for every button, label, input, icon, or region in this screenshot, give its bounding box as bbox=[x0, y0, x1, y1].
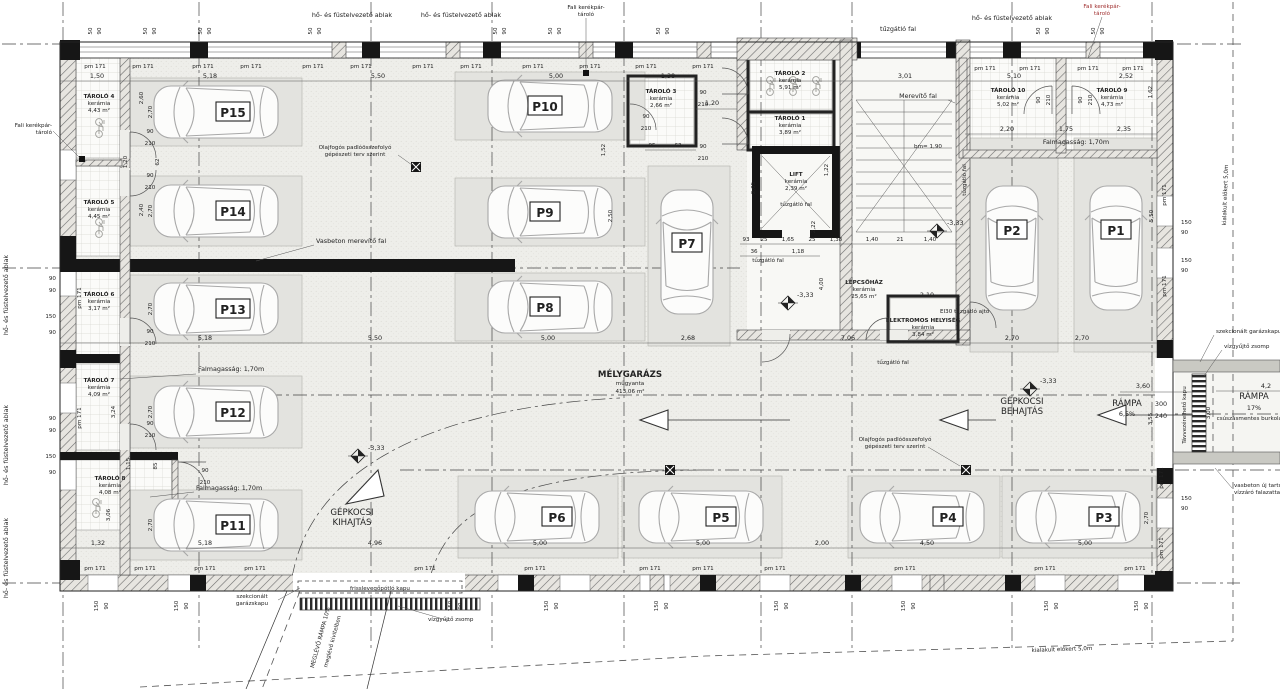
oil-drain-label: Olajfogós padlóösszefolyó bbox=[859, 436, 932, 443]
room-area: 5,02 m² bbox=[997, 101, 1019, 108]
pm-label: pm 171 bbox=[1159, 537, 1165, 559]
fire-wall-label: tűzgátló fal bbox=[961, 164, 968, 196]
fire-door-label: EI30 tűzgátló ajtó bbox=[940, 308, 990, 315]
dim-label: 7,06 bbox=[841, 334, 855, 342]
room-name: TÁROLÓ 7 bbox=[84, 377, 115, 384]
dim-label: 2,70 bbox=[1144, 511, 1150, 524]
window-size-label: 90 bbox=[1100, 27, 1106, 35]
room-name: TÁROLÓ 4 bbox=[84, 93, 115, 100]
pm-label: pm 171 bbox=[692, 566, 714, 572]
dim-label: 36 bbox=[750, 249, 758, 255]
dim-label: 2,60 bbox=[139, 91, 145, 104]
window-size-label: 90 bbox=[49, 276, 57, 282]
door-size-label: 210 bbox=[698, 156, 709, 162]
room-name: TÁROLÓ 2 bbox=[775, 70, 806, 77]
car-entry-label: BEHAJTÁS bbox=[1001, 405, 1043, 417]
door-size-label: 210 bbox=[1046, 94, 1052, 105]
smoke-vent-label: hő- és füstelvezető ablak bbox=[312, 10, 393, 19]
smoke-vent-label: hő- és füstelvezető ablak bbox=[972, 13, 1053, 22]
window-size-label: 90 bbox=[557, 27, 563, 35]
window-size-label: 90 bbox=[104, 602, 110, 610]
wall-height-label: Falmagasság: 1,70m bbox=[196, 484, 262, 492]
rc-wall-label: Vasbeton merevítő fal bbox=[316, 236, 386, 245]
window-size-label: 90 bbox=[1181, 268, 1189, 274]
window-size-label: 150 bbox=[654, 600, 660, 611]
room-material: kerámia bbox=[88, 298, 111, 305]
dim-label: 93 bbox=[742, 237, 750, 243]
room-name: TÁROLÓ 6 bbox=[84, 291, 115, 298]
dim-label: 62 bbox=[155, 158, 161, 165]
room-name: LIFT bbox=[789, 172, 802, 178]
parking-label: P10 bbox=[532, 100, 558, 114]
bike-rack-label: tároló bbox=[36, 129, 53, 136]
sectional-gate-label: szekcionált garázskapu bbox=[1216, 328, 1280, 335]
dim-label: 1,38 bbox=[830, 237, 843, 243]
door-size-label: 90 bbox=[1036, 96, 1042, 104]
door-size-label: 210 bbox=[1088, 94, 1094, 105]
pm-label: pm 171 bbox=[194, 566, 216, 572]
dim-label: 2,70 bbox=[148, 302, 154, 315]
window-size-label: 150 bbox=[1134, 600, 1140, 611]
dim-label: 1,15 bbox=[126, 457, 132, 470]
window-size-label: 50 bbox=[656, 27, 662, 35]
floor-drain-icon bbox=[665, 465, 675, 475]
door-size-label: 90 bbox=[1078, 96, 1084, 104]
dim-label: 4,50 bbox=[920, 539, 934, 547]
dim-label: 2,68 bbox=[681, 334, 695, 342]
oil-drain-label: gépészeti terv szerint bbox=[865, 443, 927, 450]
room-material: kerámia bbox=[88, 206, 111, 213]
dim-label: 1,20 bbox=[123, 155, 129, 168]
pm-label: pm 171 bbox=[244, 566, 266, 572]
window-size-label: 150 bbox=[544, 600, 550, 611]
level-label: -3,33 bbox=[368, 444, 385, 452]
window-size-label: 150 bbox=[45, 314, 56, 320]
dim-label: 2,40 bbox=[139, 203, 145, 216]
pm-label: pm 171 bbox=[1077, 66, 1099, 72]
door-size-label: 210 bbox=[145, 341, 156, 347]
dim-label: 1,62 bbox=[1148, 86, 1154, 98]
room-area: 4,09 m² bbox=[88, 391, 110, 398]
door-size-label: 90 bbox=[146, 129, 154, 135]
rc-wall-label: vasbeton új tartófal bbox=[1234, 482, 1280, 489]
window-size-label: 90 bbox=[184, 602, 190, 610]
room-area: 3,17 m² bbox=[88, 305, 110, 312]
door-size-label: 90 bbox=[699, 144, 707, 150]
window-size-label: 50 bbox=[88, 27, 94, 35]
dim-label: 5,18 bbox=[203, 72, 217, 80]
room-name: ELEKTROMOS HELYISÉG bbox=[886, 316, 961, 324]
sectional-gate-label: szekcionált bbox=[236, 593, 268, 600]
window-size-label: 150 bbox=[94, 600, 100, 611]
parking-label: P7 bbox=[678, 237, 695, 251]
room-area: 5,91 m² bbox=[779, 84, 801, 91]
window-size-label: 150 bbox=[774, 600, 780, 611]
dim-label: 2,05 bbox=[751, 181, 757, 194]
pm-label: pm 171 bbox=[524, 566, 546, 572]
dim-label: 1,52 bbox=[601, 144, 607, 156]
door-size-label: 90 bbox=[146, 421, 154, 427]
window-size-label: 90 bbox=[97, 27, 103, 35]
window-size-label: 150 bbox=[448, 600, 454, 611]
pm-label: pm 171 bbox=[302, 64, 324, 70]
window-size-label: 90 bbox=[317, 27, 323, 35]
dim-label: 4,96 bbox=[368, 539, 382, 547]
dim-label: 3,24 bbox=[111, 405, 117, 418]
dim-label: 2,50 bbox=[608, 209, 614, 222]
dim-label: 4,2 bbox=[1261, 382, 1271, 390]
oil-drain-label: gépészeti terv szerint bbox=[325, 151, 387, 158]
pm-label: pm 171 bbox=[692, 64, 714, 70]
room-material: kerámia bbox=[912, 324, 935, 331]
pm-label: pm 171 bbox=[240, 64, 262, 70]
floor-drain-icon bbox=[411, 162, 421, 172]
dim-label: 5,50 bbox=[371, 72, 385, 80]
window-size-label: 50 bbox=[198, 27, 204, 35]
window-size-label: 50 bbox=[1091, 27, 1097, 35]
parking-label: P13 bbox=[220, 303, 246, 317]
dim-label: 85 bbox=[153, 462, 159, 470]
smoke-vent-label: hő- és füstelvezető ablak bbox=[1, 518, 10, 599]
parking-label: P2 bbox=[1003, 224, 1020, 238]
room-material: kerámia bbox=[997, 94, 1020, 101]
room-material: kerámia bbox=[99, 482, 122, 489]
pm-label: pm 171 bbox=[764, 566, 786, 572]
dim-label: 5,00 bbox=[533, 539, 547, 547]
bike-rack-label: Fali kerékpár- bbox=[15, 122, 52, 129]
door-size-label: 90 bbox=[201, 468, 209, 474]
window-size-label: 90 bbox=[49, 288, 57, 294]
window-size-label: 90 bbox=[1181, 230, 1189, 236]
window-size-label: 150 bbox=[1181, 258, 1192, 264]
pm-label: pm 171 bbox=[84, 64, 106, 70]
room-name: TÁROLÓ 5 bbox=[84, 199, 115, 206]
room-material: kerámia bbox=[88, 384, 111, 391]
floor-plan-drawing: hő- és füstelvezető ablak hő- és füstelv… bbox=[0, 0, 1280, 689]
window-size-label: 50 bbox=[548, 27, 554, 35]
dim-label: 3,01 bbox=[898, 72, 912, 80]
window-size-label: 90 bbox=[49, 416, 57, 422]
parking-label: P15 bbox=[220, 106, 246, 120]
fire-wall-label: tűzgátló fal bbox=[877, 359, 909, 366]
car-exit-label: KIHAJTÁS bbox=[333, 516, 372, 528]
parking-label: P14 bbox=[220, 205, 246, 219]
window-size-label: 90 bbox=[665, 27, 671, 35]
bike-rack-label: Fali kerékpár- bbox=[567, 4, 604, 11]
level-label: -3,33 bbox=[797, 291, 814, 299]
dim-label: 2,00 bbox=[815, 539, 829, 547]
ramp-label: RÁMPA bbox=[1239, 390, 1269, 402]
dim-label: 2,70 bbox=[148, 518, 154, 531]
room-name: LÉPCSŐHÁZ bbox=[845, 278, 883, 286]
floor-plan-page: hő- és füstelvezető ablak hő- és füstelv… bbox=[0, 0, 1280, 689]
dim-label: 1,40 bbox=[866, 237, 879, 243]
stiffening-wall-label: Merevítő fal bbox=[899, 91, 937, 100]
window-size-label: 90 bbox=[784, 602, 790, 610]
window-size-label: 90 bbox=[152, 27, 158, 35]
dim-label: 21 bbox=[896, 237, 904, 243]
level-label: -3,33 bbox=[1040, 377, 1057, 385]
level-label: -3,33 bbox=[947, 219, 964, 227]
room-name: TÁROLÓ 10 bbox=[991, 87, 1026, 94]
front-yard-label: kialakult előkert 5,0m bbox=[1031, 646, 1092, 654]
window-size-label: 90 bbox=[49, 428, 57, 434]
dim-label: 1,50 bbox=[90, 72, 104, 80]
pm-label: pm 171 bbox=[77, 407, 83, 429]
pm-label: pm 171 bbox=[1034, 566, 1056, 572]
room-area: 3,89 m² bbox=[779, 129, 801, 136]
room-area: 4,08 m² bbox=[99, 489, 121, 496]
parking-label: P11 bbox=[220, 519, 246, 533]
pm-label: pm 171 bbox=[639, 566, 661, 572]
pm-label: pm 171 bbox=[77, 287, 83, 309]
remote-gate-label: Távvezérelhető kapu bbox=[1181, 386, 1188, 445]
pm-label: pm 171 bbox=[1019, 66, 1041, 72]
dim-label: 1,65 bbox=[782, 237, 795, 243]
room-material: kerámia bbox=[88, 100, 111, 107]
dim-label: 2,70 bbox=[1005, 334, 1019, 342]
dim-label: 2,70 bbox=[148, 105, 154, 118]
door-size-label: 210 bbox=[641, 126, 652, 132]
window-size-label: 150 bbox=[901, 600, 907, 611]
dim-label: 63 bbox=[674, 143, 682, 149]
dim-label: 5,50 bbox=[368, 334, 382, 342]
parking-label: P3 bbox=[1095, 511, 1112, 525]
room-area: 4,45 m² bbox=[88, 213, 110, 220]
room-name: TÁROLÓ 9 bbox=[1097, 87, 1128, 94]
dim-label: 5,00 bbox=[1078, 539, 1092, 547]
ramp-note-label: csúszásmentes burkolattal bbox=[1217, 415, 1280, 422]
pm-label: pm 171 bbox=[414, 566, 436, 572]
pm-label: pm 171 bbox=[460, 64, 482, 70]
door-size-label: 90 bbox=[146, 173, 154, 179]
pm-label: pm 171 bbox=[350, 64, 372, 70]
door-size-label: 210 bbox=[145, 185, 156, 191]
parking-label: P5 bbox=[712, 511, 729, 525]
smoke-vent-label: hő- és füstelvezető ablak bbox=[421, 10, 502, 19]
window-size-label: 50 bbox=[493, 27, 499, 35]
dim-label: 3,55 bbox=[1148, 412, 1154, 425]
window-size-label: 90 bbox=[458, 602, 464, 610]
dim-label: 2,35 bbox=[1117, 125, 1131, 133]
dim-label: 3,06 bbox=[106, 508, 112, 521]
pm-label: pm 171 bbox=[1162, 275, 1168, 297]
dim-label: 5,00 bbox=[541, 334, 555, 342]
floor-drain-icon bbox=[961, 465, 971, 475]
door-size-label: 90 bbox=[642, 114, 650, 120]
room-material: kerámia bbox=[779, 77, 802, 84]
window-size-label: 90 bbox=[1181, 506, 1189, 512]
room-name: TÁROLÓ 3 bbox=[646, 88, 677, 95]
room-material: kerámia bbox=[650, 95, 673, 102]
window-size-label: 90 bbox=[664, 602, 670, 610]
wall-height-label: Falmagasság: 1,70m bbox=[198, 365, 264, 373]
bike-rack-label: tároló bbox=[1094, 10, 1111, 17]
window-size-label: 150 bbox=[1181, 220, 1192, 226]
dim-label: 2,70 bbox=[148, 405, 154, 418]
ramp-slope-label: 17% bbox=[1247, 404, 1261, 412]
dim-label: 25 bbox=[808, 237, 816, 243]
room-name: TÁROLÓ 8 bbox=[95, 475, 126, 482]
window-size-label: 90 bbox=[1054, 602, 1060, 610]
window-size-label: 50 bbox=[1036, 27, 1042, 35]
room-material: kerámia bbox=[779, 122, 802, 129]
room-area: 3,84 m² bbox=[912, 331, 934, 338]
car-entry-label: GÉPKOCSI bbox=[1000, 395, 1043, 407]
dim-label: 2,22 bbox=[811, 221, 817, 233]
fire-wall-label: tűzgátló fal bbox=[780, 201, 812, 208]
window-size-label: 150 bbox=[1181, 496, 1192, 502]
room-material: kerámia bbox=[853, 286, 876, 293]
ramp-slope-label: 6,5% bbox=[1119, 410, 1135, 418]
pm-label: pm 171 bbox=[1124, 566, 1146, 572]
parking-label: P6 bbox=[548, 511, 565, 525]
parking-label: P4 bbox=[939, 511, 956, 525]
sump-label: vízgyűjtő zsomp bbox=[1224, 343, 1270, 350]
dim-label: 2,70 bbox=[1075, 334, 1089, 342]
dim-label: 4,00 bbox=[819, 277, 825, 290]
window-size-label: 90 bbox=[49, 330, 57, 336]
room-area: 413,06 m² bbox=[615, 388, 644, 395]
room-area: 2,66 m² bbox=[650, 102, 672, 109]
smoke-vent-label: hő- és füstelvezető ablak bbox=[1, 255, 10, 336]
window-size-label: 90 bbox=[207, 27, 213, 35]
sump-label: vízgyűjtő zsomp bbox=[428, 616, 474, 623]
fire-wall-label: tűzgátló fal bbox=[752, 257, 784, 264]
parking-label: P12 bbox=[220, 406, 246, 420]
wall-height-label: Falmagasság: 1,70m bbox=[1043, 138, 1109, 146]
dim-label: 1,40 bbox=[924, 237, 937, 243]
oil-drain-label: Olajfogós padlóösszefolyó bbox=[319, 144, 392, 151]
dim-label: 3,00 bbox=[1206, 406, 1212, 419]
parking-label: P9 bbox=[536, 206, 553, 220]
car-exit-label: GÉPKOCSI bbox=[330, 506, 373, 518]
pm-label: pm 171 bbox=[974, 66, 996, 72]
pm-label: pm 171 bbox=[522, 64, 544, 70]
room-material: műgyanta bbox=[616, 381, 644, 387]
dim-label: 2,20 bbox=[1000, 125, 1014, 133]
ramp-label: RÁMPA bbox=[1112, 397, 1142, 409]
window-size-label: 90 bbox=[911, 602, 917, 610]
dim-label: 2,10 bbox=[920, 291, 934, 299]
door-size-label: 210 bbox=[145, 433, 156, 439]
headroom-label: bm= 1,90 bbox=[914, 144, 942, 150]
window-size-label: 50 bbox=[308, 27, 314, 35]
pm-label: pm 171 bbox=[192, 64, 214, 70]
dim-label: 300 bbox=[1155, 400, 1167, 408]
sectional-gate-label: garázskapu bbox=[236, 600, 269, 607]
room-material: kerámia bbox=[785, 178, 808, 185]
parking-label: P8 bbox=[536, 301, 553, 315]
window-size-label: 90 bbox=[554, 602, 560, 610]
room-area: 4,73 m² bbox=[1101, 101, 1123, 108]
pm-label: pm 171 bbox=[84, 566, 106, 572]
room-name: MÉLYGARÁZS bbox=[598, 368, 662, 380]
dim-label: 2,52 bbox=[1119, 72, 1133, 80]
rc-wall-label: vízzáró falazattal bbox=[1234, 489, 1280, 496]
fresh-air-gate-label: frisslevegőpótló kapu bbox=[350, 585, 410, 592]
dim-label: 5,18 bbox=[198, 539, 212, 547]
dim-label: 5,50 bbox=[1149, 209, 1155, 222]
door-size-label: 210 bbox=[145, 141, 156, 147]
window-size-label: 150 bbox=[1044, 600, 1050, 611]
bike-rack-label: Fali kerékpár- bbox=[1083, 3, 1120, 10]
dim-label: 240 bbox=[1155, 412, 1167, 420]
dim-label: 3,60 bbox=[1136, 382, 1150, 390]
window-size-label: 90 bbox=[502, 27, 508, 35]
dim-label: 1,22 bbox=[824, 164, 830, 176]
front-yard-label: kialakult előkert 5,0m bbox=[1222, 164, 1230, 225]
room-material: kerámia bbox=[1101, 94, 1124, 101]
pm-label: pm 171 bbox=[412, 64, 434, 70]
dim-label: 1,75 bbox=[1059, 125, 1073, 133]
pm-label: pm 171 bbox=[134, 566, 156, 572]
pm-label: pm 171 bbox=[579, 64, 601, 70]
dim-label: 5,10 bbox=[1007, 72, 1021, 80]
dim-label: 5,18 bbox=[198, 334, 212, 342]
pm-label: pm 171 bbox=[894, 566, 916, 572]
pm-label: pm 171 bbox=[635, 64, 657, 70]
bike-rack-label: tároló bbox=[578, 11, 595, 18]
room-area: 2,39 m² bbox=[785, 185, 807, 192]
parking-label: P1 bbox=[1107, 224, 1124, 238]
window-size-label: 50 bbox=[143, 27, 149, 35]
dim-label: 1,32 bbox=[91, 539, 105, 547]
window-size-label: 90 bbox=[1045, 27, 1051, 35]
pm-label: pm 171 bbox=[1162, 184, 1168, 206]
window-size-label: 90 bbox=[49, 470, 57, 476]
dim-label: 5,00 bbox=[549, 72, 563, 80]
window-size-label: 150 bbox=[174, 600, 180, 611]
room-name: TÁROLÓ 1 bbox=[775, 115, 806, 122]
ramp-grate bbox=[1192, 374, 1206, 452]
pm-label: pm 171 bbox=[132, 64, 154, 70]
window-size-label: 90 bbox=[1144, 602, 1150, 610]
dim-label: 95 bbox=[648, 143, 656, 149]
dim-label: 1,38 bbox=[661, 72, 675, 80]
door-size-label: 90 bbox=[146, 329, 154, 335]
fire-wall-label: tűzgátló fal bbox=[880, 24, 916, 33]
door-size-label: 210 bbox=[698, 102, 709, 108]
door-size-label: 90 bbox=[699, 90, 707, 96]
dim-label: 5,00 bbox=[696, 539, 710, 547]
pm-label: pm 171 bbox=[1159, 467, 1165, 489]
dim-label: 1,18 bbox=[792, 249, 805, 255]
smoke-vent-label: hő- és füstelvezető ablak bbox=[1, 405, 10, 486]
room-area: 25,65 m² bbox=[851, 293, 876, 300]
dim-label: 25 bbox=[760, 237, 768, 243]
dim-label: 2,70 bbox=[148, 204, 154, 217]
room-area: 4,43 m² bbox=[88, 107, 110, 114]
window-size-label: 150 bbox=[45, 454, 56, 460]
